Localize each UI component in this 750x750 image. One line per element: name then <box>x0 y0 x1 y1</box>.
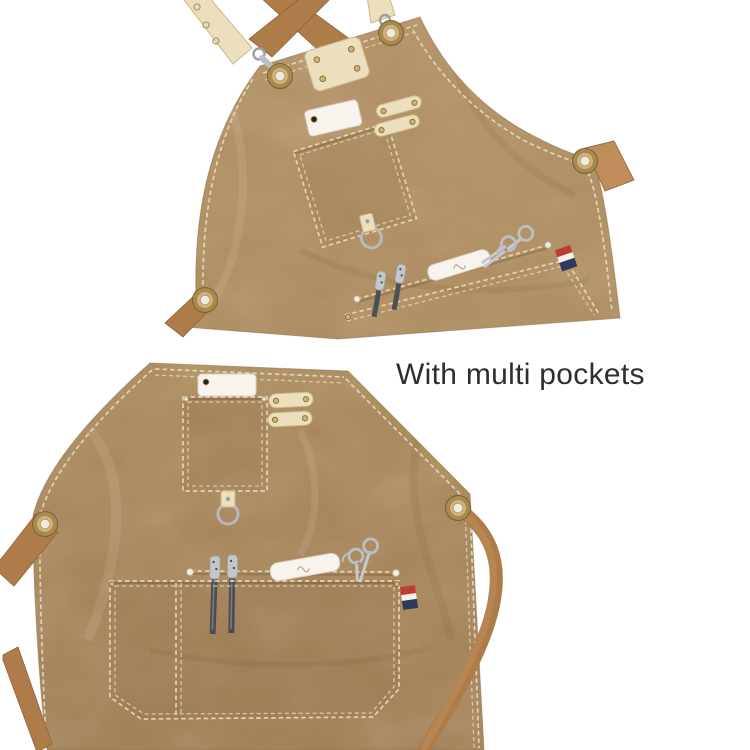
grommet-side-left-full-view <box>33 512 58 537</box>
caption: With multi pockets <box>396 358 696 392</box>
grommet-bib-right <box>379 21 404 46</box>
chest-pocket-full-view <box>183 397 267 491</box>
grommet-side-right-top-view <box>573 149 598 174</box>
main-pocket <box>110 581 400 719</box>
grommet-side-right-full-view <box>446 496 471 521</box>
apron-full-view <box>0 355 520 750</box>
apron-detail-view <box>150 0 650 360</box>
flag-tag-full-view <box>400 585 418 610</box>
grommet-side-left-top-view <box>193 288 218 313</box>
shoulder-strap-left <box>181 0 252 64</box>
grommet-bib-left <box>268 64 293 89</box>
apron-product-photo: With multi pockets <box>0 0 750 750</box>
phone-in-pocket <box>198 374 256 396</box>
